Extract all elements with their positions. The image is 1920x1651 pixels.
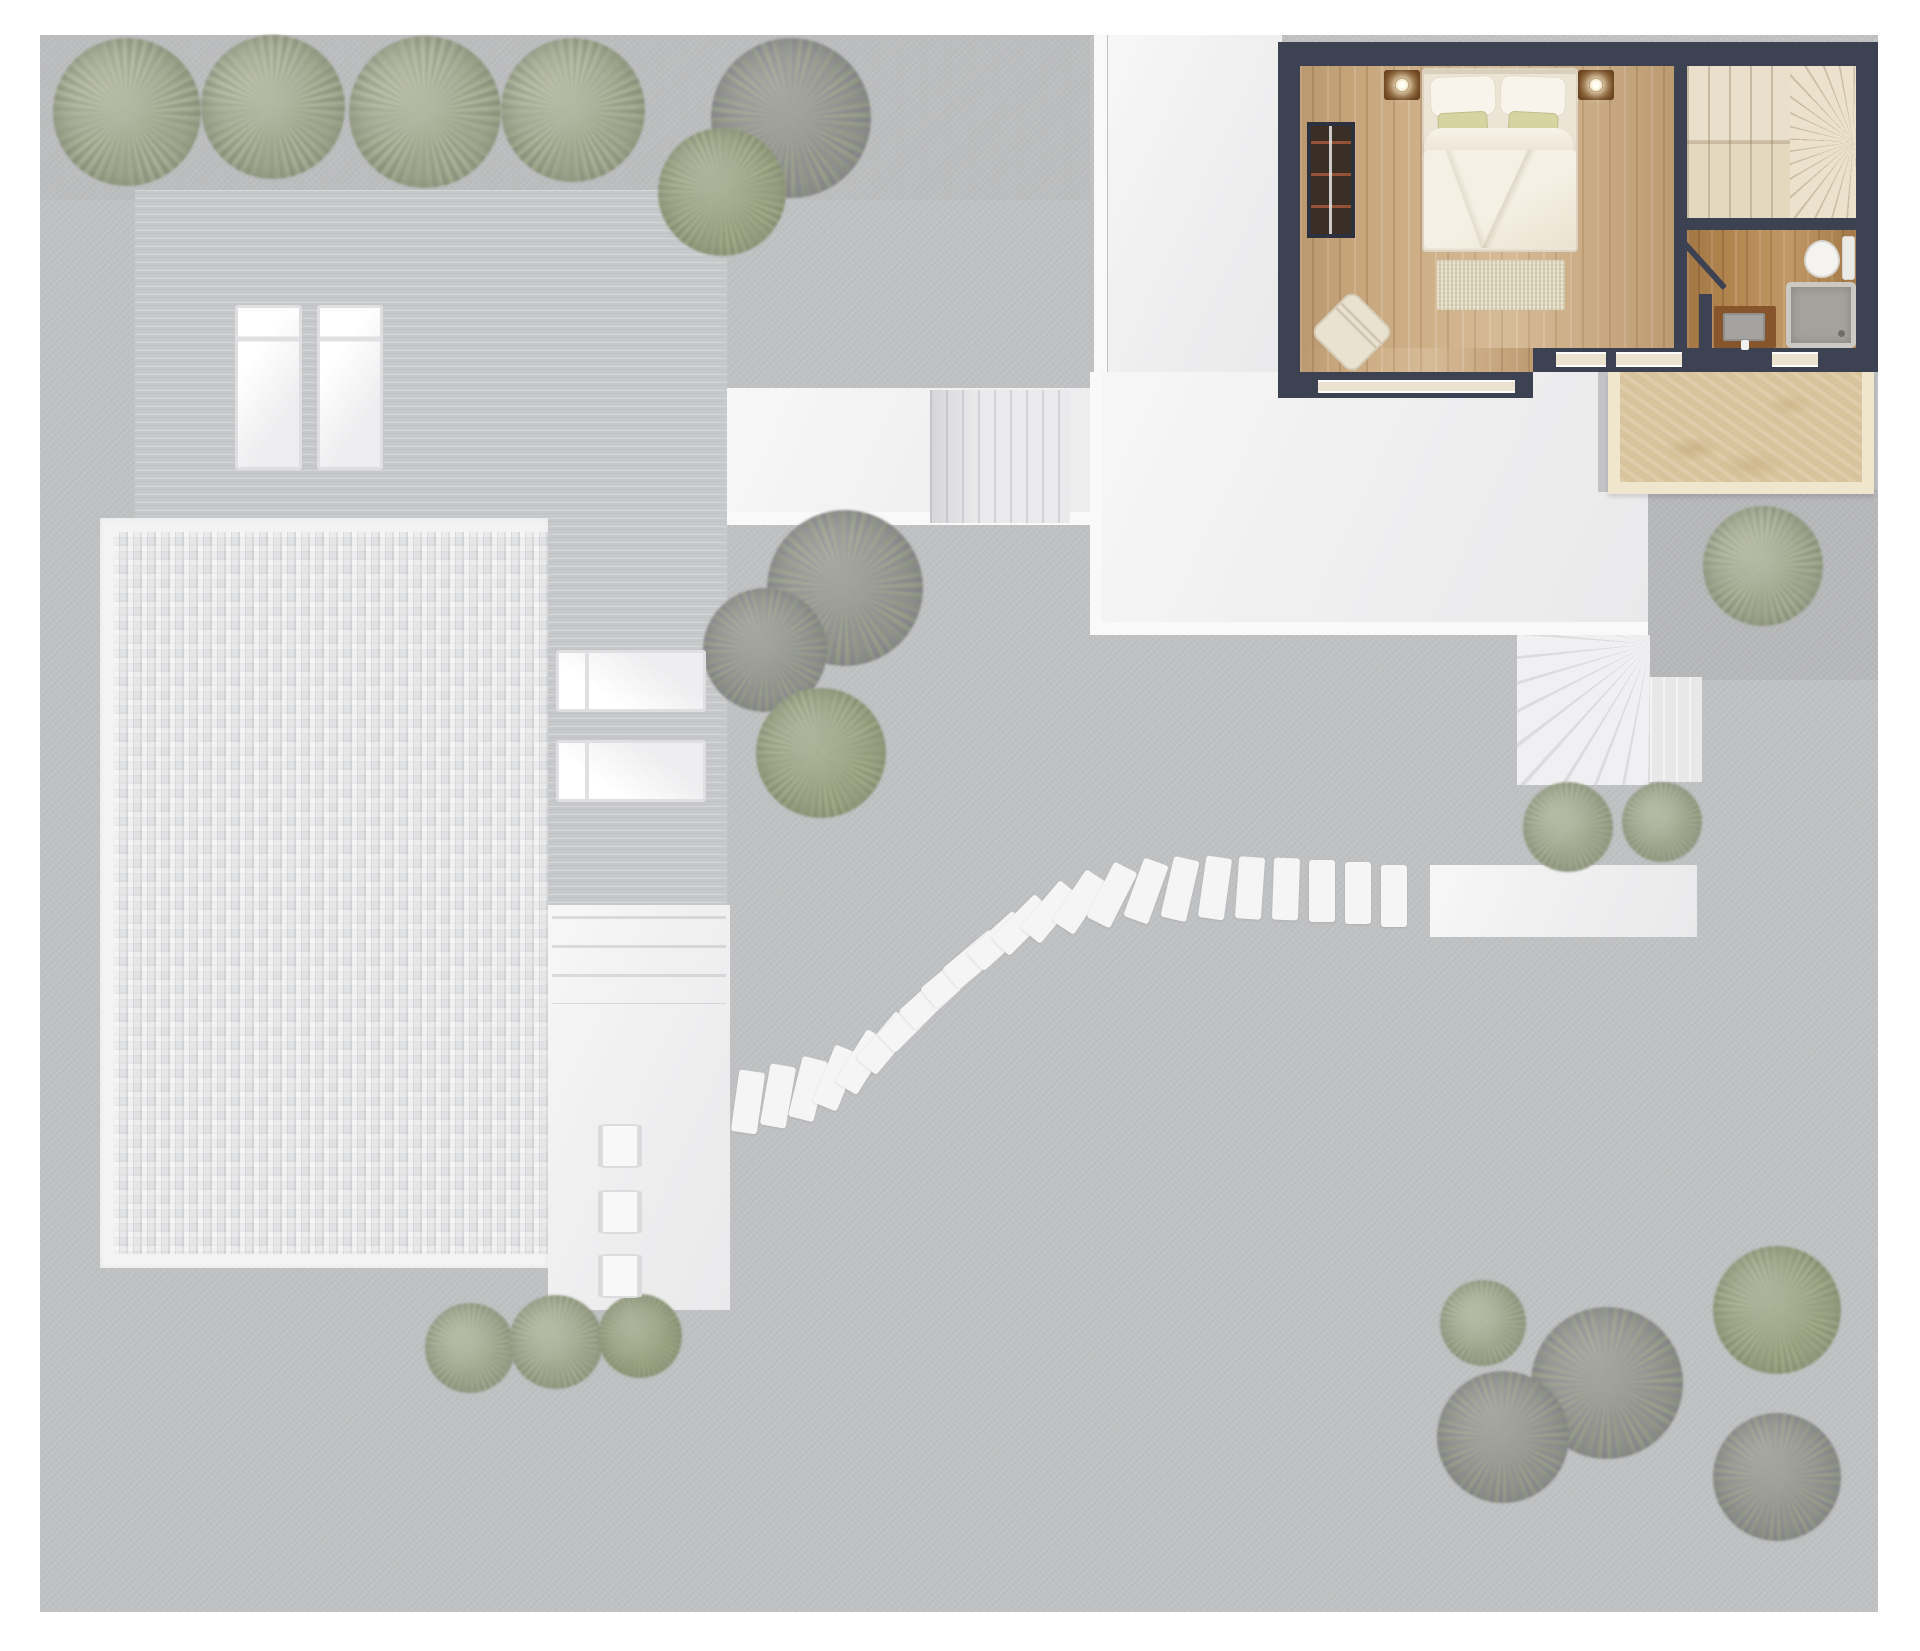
bush-pool-3 <box>598 1294 682 1378</box>
sun-lounger-1 <box>235 305 302 470</box>
lower-patio-edge-bottom <box>1090 622 1648 635</box>
patio-chair-3 <box>601 1254 639 1298</box>
window-bath-2 <box>1616 352 1682 367</box>
lower-patio-edge-left <box>1090 372 1101 635</box>
pool-mosaic <box>114 532 548 1254</box>
patio-chair-2 <box>601 1190 639 1234</box>
patio-chair-1 <box>601 1124 639 1168</box>
toilet-bowl <box>1804 240 1840 278</box>
vanity-tap <box>1741 340 1749 350</box>
pillow-left <box>1429 75 1496 117</box>
tree-row-2 <box>201 35 345 179</box>
bush-stairs-right <box>1622 782 1702 862</box>
lamp-right <box>1589 78 1603 92</box>
window-bath-3 <box>1772 352 1818 367</box>
tree-row-3 <box>349 36 501 188</box>
bush-br-left <box>1437 1371 1569 1503</box>
bush-top-green <box>658 128 786 256</box>
stairs-upper-flight <box>1687 66 1790 142</box>
sun-lounger-2 <box>317 305 383 470</box>
patio-steps <box>552 916 726 1004</box>
stepping-stone-23 <box>1381 865 1407 927</box>
bed-rug <box>1437 260 1565 310</box>
wood-deck-main <box>135 190 727 526</box>
stepping-stone-19 <box>1235 856 1265 920</box>
tree-row-1 <box>53 38 201 186</box>
wood-deck-column <box>548 526 727 912</box>
winder-stairs-ext <box>1650 677 1702 782</box>
vanity-basin <box>1723 313 1765 341</box>
window-bath-1 <box>1556 352 1606 367</box>
winder-stairs <box>1517 635 1650 785</box>
duvet <box>1424 150 1576 248</box>
balcony-floor <box>1620 372 1862 482</box>
bush-stairs-left <box>1523 782 1613 872</box>
tree-row-4 <box>501 38 645 182</box>
shower-tray <box>1786 282 1856 348</box>
window-bedroom <box>1318 380 1515 393</box>
pillow-right <box>1499 75 1566 117</box>
stepping-stone-20 <box>1272 858 1300 921</box>
bush-mid-green <box>756 688 886 818</box>
lamp-left <box>1395 78 1409 92</box>
stairs-lower-flight <box>1687 142 1790 218</box>
patio-strip-vertical <box>1108 35 1282 388</box>
bush-br-topright <box>1713 1246 1841 1374</box>
lower-patio <box>1090 372 1648 635</box>
shower-drain <box>1838 330 1845 337</box>
garden-stairs-straight <box>930 390 1070 523</box>
bush-pool-1 <box>425 1303 515 1393</box>
plan-canvas <box>0 0 1920 1651</box>
stairs-winder-top <box>1790 66 1856 218</box>
stepping-stone-22 <box>1345 862 1371 924</box>
sun-lounger-3 <box>556 650 706 712</box>
stepping-stone-21 <box>1309 860 1335 922</box>
wardrobe <box>1307 122 1355 238</box>
bush-paved-square <box>1703 506 1823 626</box>
path-strip-right <box>1430 865 1697 937</box>
bush-br-bottomright <box>1713 1413 1841 1541</box>
bathroom-partition-wall <box>1699 294 1712 348</box>
bush-pool-2 <box>509 1295 603 1389</box>
toilet-tank <box>1842 236 1855 280</box>
sun-lounger-4 <box>556 740 706 802</box>
site-plan-page <box>0 0 1920 1651</box>
patio-edge-left <box>1094 35 1107 375</box>
bush-br-small <box>1440 1280 1526 1366</box>
